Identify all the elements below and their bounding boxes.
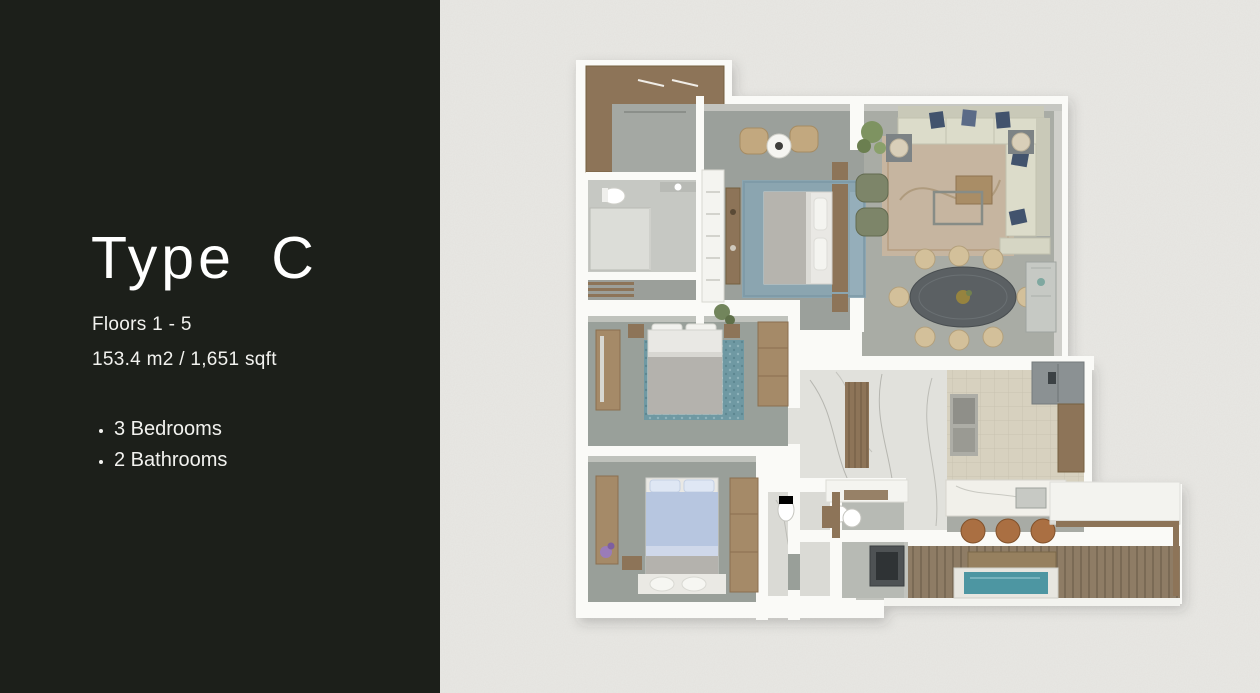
shelf-icon [844,490,888,500]
bed-icon [648,324,722,414]
fridge-icon [1032,362,1084,404]
pillow-icon [995,111,1010,128]
floorplan-render [440,0,1260,693]
kitchen-island-icon [946,480,1066,516]
side-table-lamp-icon [886,134,912,162]
outdoor-counter-icon [968,552,1056,568]
builtin-wardrobe-icon [702,170,724,302]
pillow-icon [961,109,977,126]
dining-table-icon [910,267,1016,327]
nightstand-icon [832,162,848,180]
washer-icon [870,546,904,586]
closet-icon [730,478,758,592]
nightstand-icon [724,324,740,338]
slat-console-icon [845,382,869,468]
nightstand-icon [628,324,644,338]
water-feature-icon [954,568,1058,598]
door-icon [832,492,840,538]
foot-bench-icon [638,574,726,594]
roof-slab-icon [1050,482,1180,525]
closet-icon [758,322,788,406]
backsplash-icon [950,394,978,456]
wine-cabinet-icon [1026,262,1056,332]
pillow-icon [929,111,945,129]
plan-title: Type C [91,224,318,292]
area-line: 153.4 m2 / 1,651 sqft [92,349,277,371]
counter-icon [1058,404,1084,472]
nightstand-icon [622,556,642,570]
nightstand-icon [832,294,848,312]
basin-icon [843,509,861,527]
room-bathroom [588,180,696,272]
wardrobe-icon [596,330,620,410]
slide: Type C Floors 1 - 5 153.4 m2 / 1,651 sqf… [0,0,1260,693]
floors-line: Floors 1 - 5 [92,314,192,336]
bed-icon [764,184,848,292]
floorplan-area [440,0,1260,693]
sink-icon [675,184,682,191]
wardrobe-icon [596,476,618,564]
feature-bedrooms: 3 Bedrooms [114,418,227,440]
feature-list: 3 Bedrooms 2 Bathrooms [92,418,227,480]
side-table-lamp-icon [1008,130,1034,154]
info-panel: Type C Floors 1 - 5 153.4 m2 / 1,651 sqf… [0,0,440,693]
bar-stool-icon [961,519,1055,543]
feature-bathrooms: 2 Bathrooms [114,449,227,471]
bed-icon [646,478,718,574]
dresser-icon [726,188,740,284]
